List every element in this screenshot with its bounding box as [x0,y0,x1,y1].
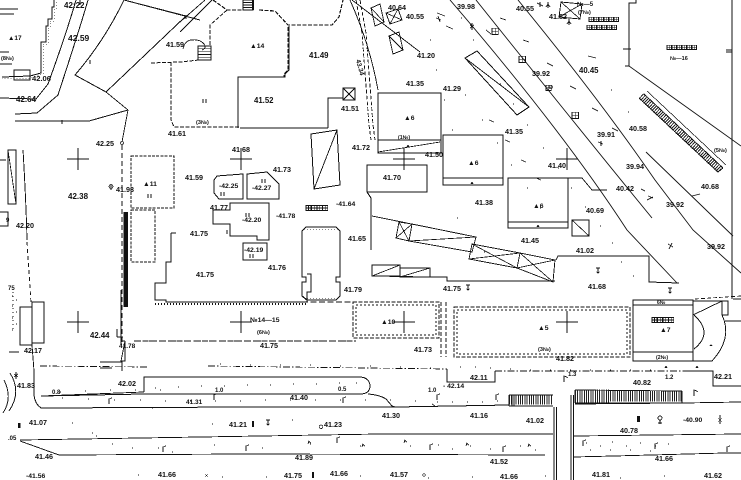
svg-text:41.75: 41.75 [196,270,214,279]
svg-text:41.30: 41.30 [382,411,400,420]
svg-text:42.17: 42.17 [24,346,42,355]
svg-text:41.76: 41.76 [268,263,286,272]
svg-text:-42.20: -42.20 [242,217,261,224]
svg-text:▲10: ▲10 [381,319,396,326]
svg-text:41.82: 41.82 [549,12,567,21]
svg-text:№—16: №—16 [670,56,688,62]
svg-text:41.70: 41.70 [383,173,401,182]
svg-text:41.66: 41.66 [330,469,348,478]
svg-text:40.64: 40.64 [388,3,406,12]
svg-text:41.59: 41.59 [185,173,203,182]
svg-text:41.57: 41.57 [390,470,408,479]
svg-text:41.45: 41.45 [521,236,539,245]
svg-text:42.06: 42.06 [32,74,51,83]
svg-text:-42.27: -42.27 [252,185,271,192]
svg-text:(7№): (7№) [578,10,591,16]
svg-text:40.55: 40.55 [516,4,534,13]
svg-text:41.68: 41.68 [588,282,606,291]
svg-text:1.0: 1.0 [428,388,437,394]
svg-text:41.68: 41.68 [232,145,250,154]
svg-text:41.02: 41.02 [526,416,544,425]
svg-text:41.52: 41.52 [490,457,508,466]
svg-text:41.65: 41.65 [348,234,366,243]
svg-text:40.55: 40.55 [406,12,424,21]
svg-text:41.66: 41.66 [655,454,673,463]
svg-text:0.8: 0.8 [52,390,61,396]
svg-text:41.40: 41.40 [548,161,566,170]
svg-text:▲5: ▲5 [538,325,549,332]
svg-text:42.02: 42.02 [118,379,136,388]
svg-text:-40.90: -40.90 [683,417,702,424]
svg-text:41.40: 41.40 [290,393,308,402]
svg-text:▲7: ▲7 [660,327,671,334]
svg-text:(2№): (2№) [656,355,668,361]
svg-text:▲11: ▲11 [143,181,157,188]
svg-text:39.91: 39.91 [597,130,615,139]
svg-text:41.75: 41.75 [260,341,278,350]
svg-text:41.49: 41.49 [309,51,329,60]
svg-text:- 42.14: - 42.14 [443,383,464,390]
svg-text:(8№): (8№) [1,56,14,62]
svg-text:(5№): (5№) [714,148,727,154]
svg-text:42.25: 42.25 [96,139,114,148]
svg-text:▲6: ▲6 [468,160,479,167]
svg-text:41.73: 41.73 [414,345,432,354]
svg-text:41.77: 41.77 [210,203,228,212]
svg-text:▲14: ▲14 [250,43,265,50]
svg-text:41.66: 41.66 [500,472,518,480]
svg-text:-41.56: -41.56 [26,473,45,480]
svg-text:42.21: 42.21 [714,372,732,381]
svg-text:41.72: 41.72 [352,143,370,152]
svg-text:40.69: 40.69 [586,206,604,215]
svg-text:41.59: 41.59 [166,40,184,49]
svg-text:41.78: 41.78 [119,343,136,350]
svg-text:39.92: 39.92 [707,242,725,251]
svg-text:42.59: 42.59 [68,33,90,43]
svg-text:(3№): (3№) [196,120,209,126]
svg-text:41.83: 41.83 [17,381,35,390]
svg-text:40.42: 40.42 [616,184,634,193]
svg-text:41.35: 41.35 [505,127,523,136]
svg-text:41.02: 41.02 [576,246,594,255]
svg-text:39.92: 39.92 [532,69,550,78]
svg-text:(1№): (1№) [398,135,410,141]
svg-text:41.21: 41.21 [229,420,247,429]
svg-text:41.20: 41.20 [417,51,435,60]
svg-text:(3№): (3№) [538,347,551,353]
svg-text:▲17: ▲17 [8,35,22,42]
svg-text:1.3: 1.3 [568,372,577,378]
svg-text:41.46: 41.46 [35,452,53,461]
svg-text:39.94: 39.94 [626,162,644,171]
svg-text:41.07: 41.07 [29,418,47,427]
svg-text:▲6: ▲6 [404,115,415,122]
svg-text:41.75: 41.75 [443,284,461,293]
svg-text:40.45: 40.45 [579,66,599,75]
svg-text:41.75: 41.75 [284,471,302,480]
svg-text:41.51: 41.51 [341,104,359,113]
svg-text:41.16: 41.16 [470,411,488,420]
svg-text:41.23: 41.23 [324,420,342,429]
svg-text:39.92: 39.92 [666,200,684,209]
svg-text:41.75: 41.75 [190,229,208,238]
svg-text:41.82: 41.82 [556,354,574,363]
svg-text:75: 75 [8,286,15,292]
svg-text:41.66: 41.66 [158,470,176,479]
svg-text:41.38: 41.38 [475,198,493,207]
svg-text:41.52: 41.52 [254,96,274,105]
svg-text:41.62: 41.62 [704,471,722,480]
svg-text:40.82: 40.82 [633,378,651,387]
svg-text:41.79: 41.79 [344,285,362,294]
svg-text:.05: .05 [8,436,17,442]
svg-text:39.98: 39.98 [457,2,475,11]
svg-text:№—5: №—5 [577,1,594,8]
svg-text:40.58: 40.58 [629,124,647,133]
svg-text:41.61: 41.61 [168,129,186,138]
svg-text:(6№): (6№) [257,330,270,336]
svg-text:41.31: 41.31 [186,399,203,406]
svg-text:▲6: ▲6 [533,203,544,210]
svg-text:40.68: 40.68 [701,182,719,191]
svg-text:41.89: 41.89 [295,453,313,462]
svg-text:41.50: 41.50 [425,150,443,159]
svg-text:42.20: 42.20 [16,221,34,230]
svg-text:D: D [549,85,553,91]
svg-text:1.0: 1.0 [215,388,224,394]
svg-text:-42.25: -42.25 [219,183,238,190]
svg-text:1.2: 1.2 [665,375,674,381]
svg-text:-41.78: -41.78 [276,213,295,220]
svg-text:№14—15: №14—15 [250,317,280,324]
svg-text:0.5: 0.5 [338,387,347,393]
svg-text:42.11: 42.11 [470,373,488,382]
svg-text:41.73: 41.73 [273,165,291,174]
svg-text:42.44: 42.44 [90,331,110,340]
svg-text:-41.64: -41.64 [336,201,355,208]
svg-text:41.35: 41.35 [406,79,424,88]
svg-text:40.78: 40.78 [620,426,638,435]
svg-text:-42.19: -42.19 [244,247,263,254]
svg-text:42.64: 42.64 [16,95,37,104]
svg-text:41.81: 41.81 [592,470,610,479]
svg-text:41.29: 41.29 [443,84,461,93]
svg-text:42.38: 42.38 [68,192,89,201]
